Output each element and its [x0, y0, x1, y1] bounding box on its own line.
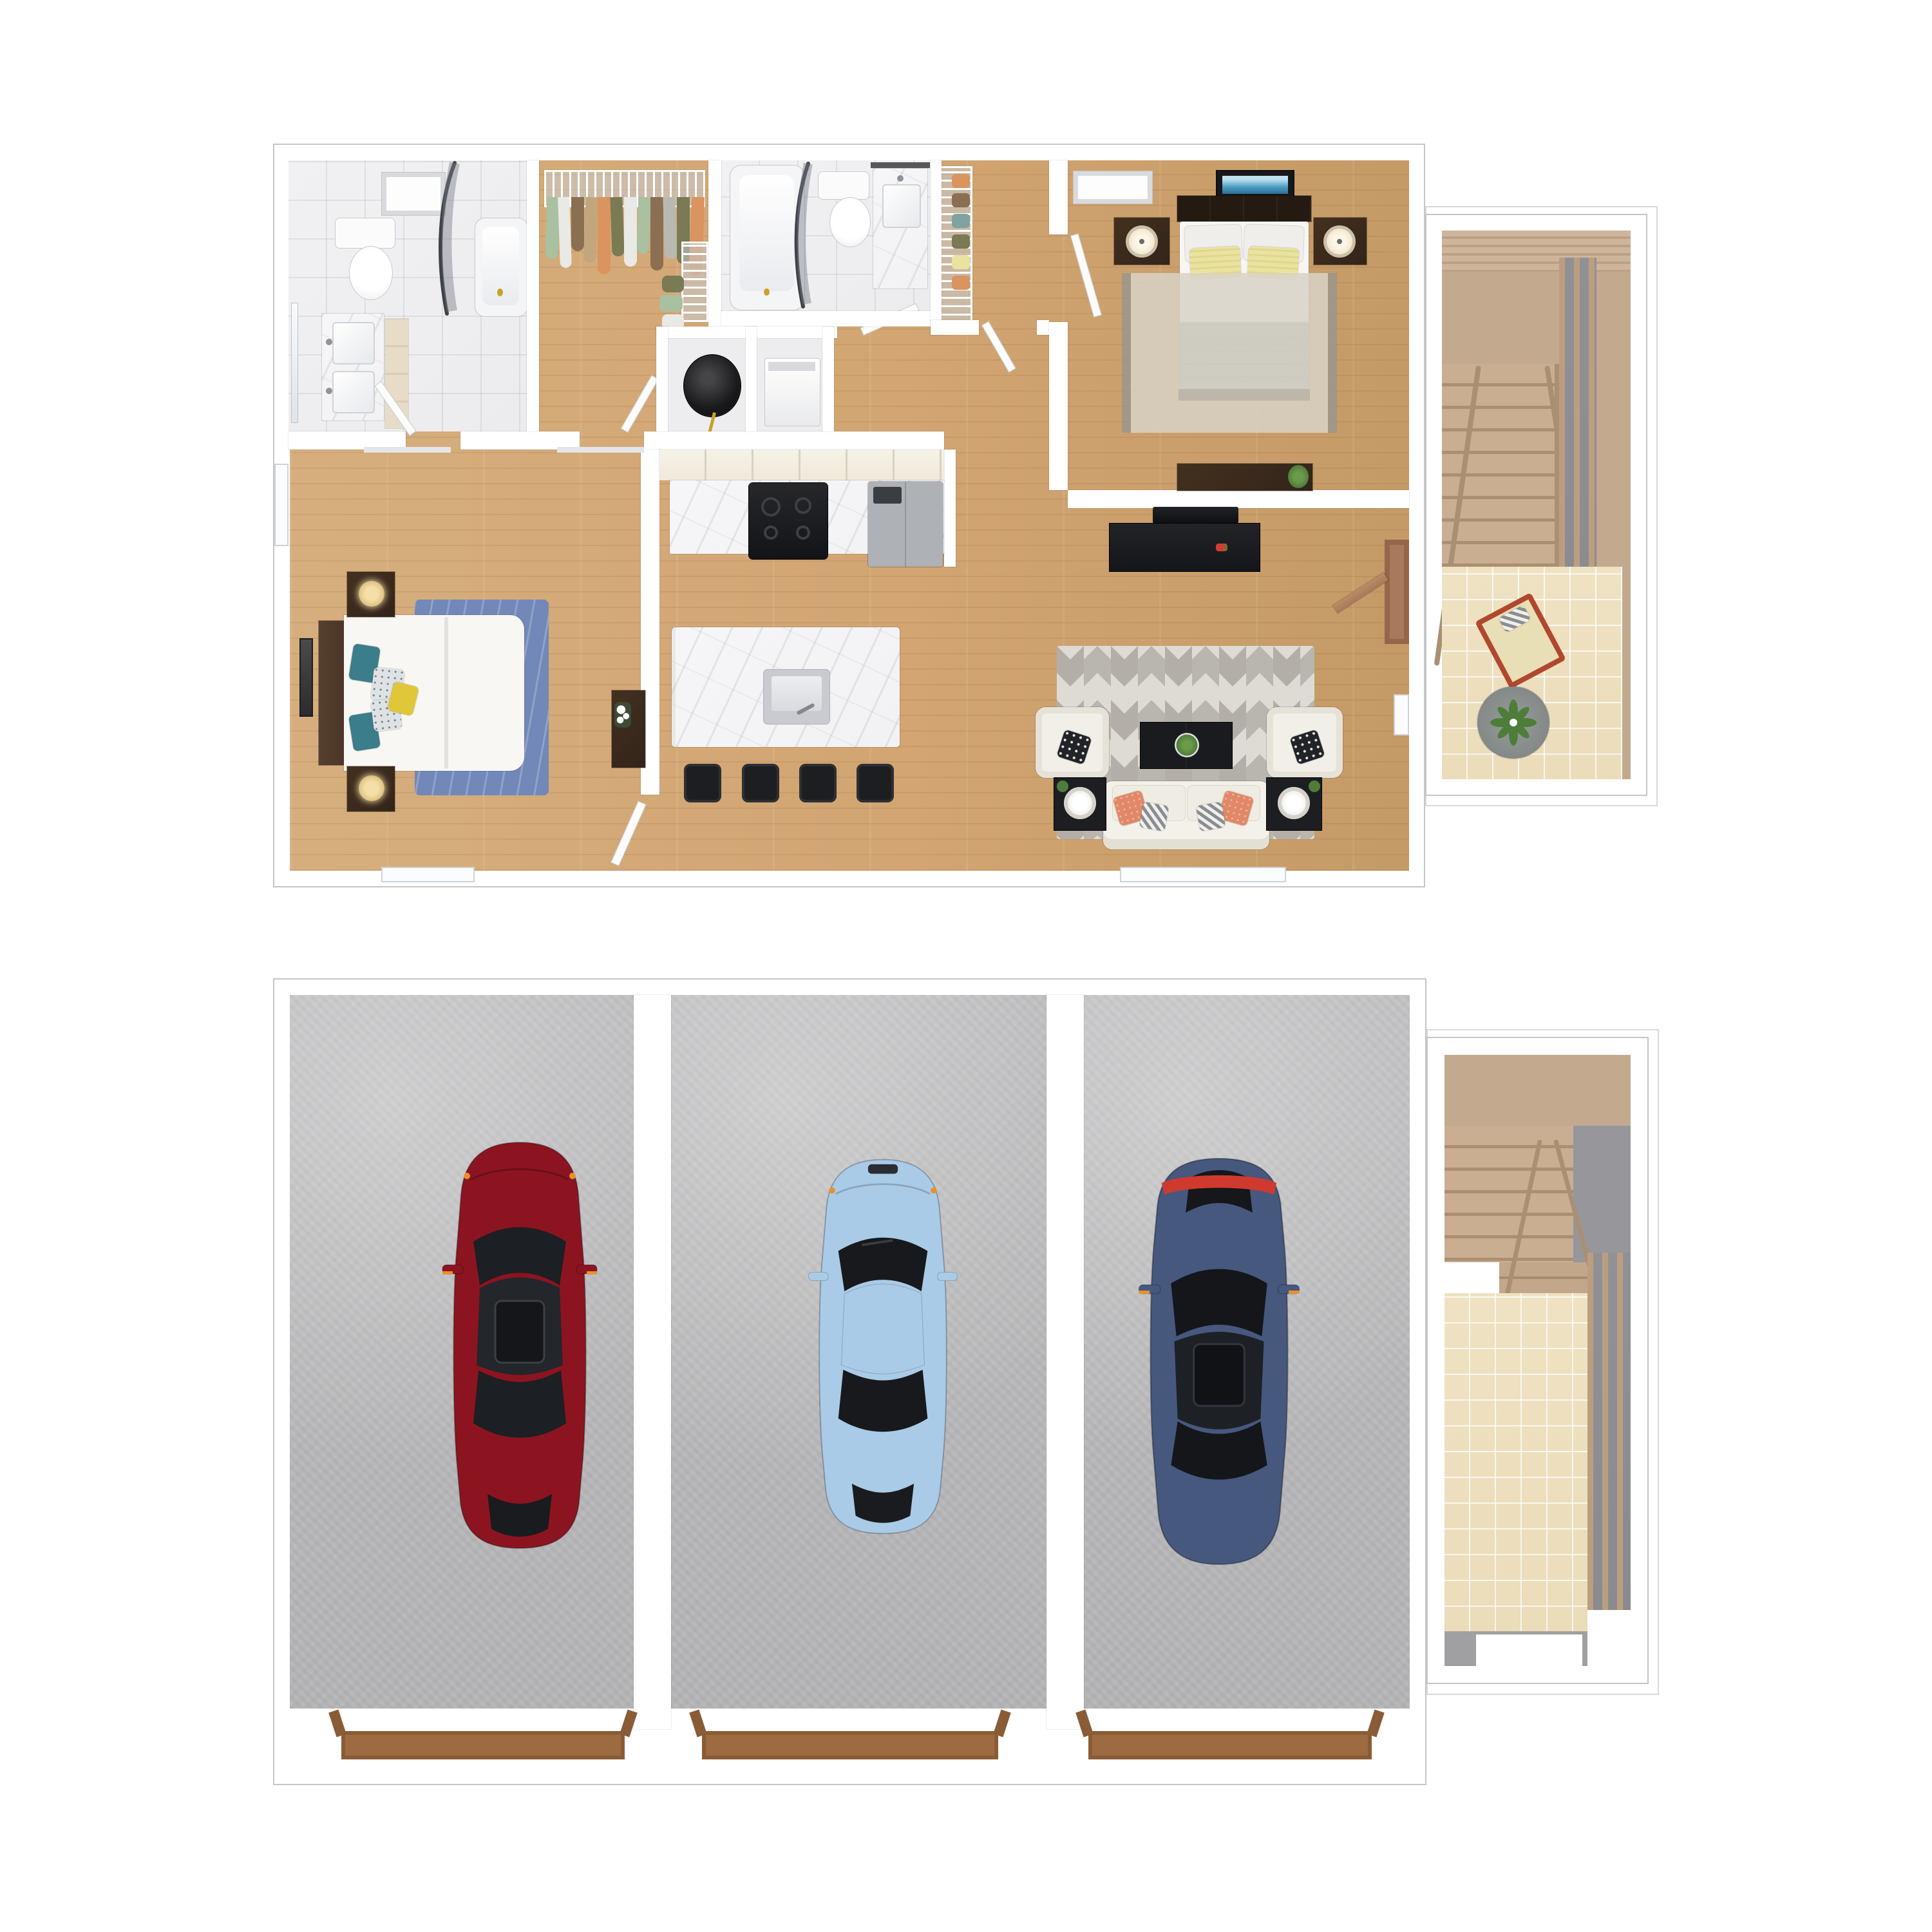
wall [721, 311, 931, 327]
wall [746, 327, 757, 431]
living-right-window [1394, 694, 1409, 735]
faucet-2 [326, 388, 332, 394]
vanity-sink-3 [882, 184, 921, 228]
garage-landing-doorway [1476, 1634, 1582, 1666]
coffee-table-plant [1175, 733, 1199, 757]
faucet-1 [326, 339, 332, 345]
shower-curtain-bath2 [782, 160, 834, 311]
sofa-pillow-striped-right [1196, 802, 1226, 831]
shoe-item [952, 255, 970, 269]
wall [944, 450, 956, 567]
bathtub-2-drain [764, 289, 770, 296]
floor-plan-canvas [0, 0, 1932, 1932]
bedroom2-lamp-right [1323, 225, 1356, 258]
toilet-bowl-master [349, 246, 393, 300]
master-bedroom-window [274, 464, 289, 546]
landing-plant [1489, 698, 1538, 747]
garage-stairwell-top [1444, 1055, 1631, 1126]
main-floor-plan [0, 0, 1932, 966]
clothing-item [558, 197, 572, 269]
tv-console [1110, 524, 1260, 571]
garage-staircase-upper [1444, 1126, 1573, 1262]
entry-door-frame [1385, 540, 1409, 644]
wall [1049, 160, 1068, 234]
master-lamp-bottom [359, 775, 384, 801]
clothing-item [598, 197, 611, 274]
bedroom2-skylight [1074, 171, 1152, 204]
toilet-bowl-2 [829, 197, 871, 247]
range-burner [764, 526, 778, 540]
faucet-3 [897, 175, 904, 182]
wall [931, 160, 942, 335]
wall [1049, 322, 1068, 490]
garage-door-threshold-1 [341, 1731, 625, 1759]
shoe-item [952, 234, 970, 249]
washer-panel [768, 362, 815, 371]
shoe-item [952, 276, 970, 290]
range-burner [761, 497, 781, 516]
bar-stool [684, 764, 721, 802]
garage-bay-wall-1 [634, 995, 671, 1729]
shower-curtain-master [425, 158, 483, 319]
master-lamp-top [359, 581, 384, 607]
garage-landing-tile [1444, 1293, 1587, 1631]
clothing-item [650, 197, 663, 270]
wall [1037, 320, 1049, 335]
vanity-sink-1 [332, 322, 375, 365]
sofa-pillow-striped-left [1139, 802, 1169, 831]
end-table-lamp-left [1064, 787, 1096, 819]
car-light-blue [800, 1156, 966, 1536]
toilet-tank-master [335, 218, 395, 249]
range-burner [796, 526, 810, 540]
range-burner [795, 497, 811, 514]
clothing-item [571, 197, 584, 251]
garage-floor-plan [0, 966, 1932, 1932]
master-door-lintel-2 [557, 447, 644, 453]
kitchen-upper-cabinets [659, 450, 944, 480]
car-red [433, 1139, 606, 1551]
wall [822, 327, 834, 431]
master-art-frame [301, 639, 312, 715]
car-navy [1130, 1156, 1309, 1568]
bedroom2-art-image [1222, 176, 1288, 194]
living-bottom-window [1120, 867, 1286, 882]
stairwell-joists [1442, 231, 1631, 272]
garage-door-threshold-2 [702, 1731, 998, 1759]
bedroom2-desk-plant [1288, 465, 1309, 488]
closet-drawer-tower [681, 241, 708, 322]
dresser-flowers [614, 702, 631, 728]
clothing-item [610, 197, 624, 257]
tv [1153, 507, 1238, 524]
clothing-item [636, 197, 650, 254]
bedroom2-headboard [1177, 196, 1311, 222]
garage-bay-wall-2 [1046, 995, 1084, 1729]
wall [931, 320, 979, 335]
wall [527, 160, 539, 431]
garage-door-threshold-3 [1088, 1731, 1372, 1759]
bedroom2-lamp-left [1126, 225, 1158, 258]
vanity-sink-2 [332, 371, 375, 413]
clothes-pile [662, 276, 684, 292]
garage-slat-wall [1587, 1253, 1631, 1610]
shoe-item [952, 214, 970, 228]
clothing-item [583, 197, 598, 263]
wall [1068, 490, 1409, 508]
shoe-item [952, 174, 970, 188]
master-bottom-window [381, 867, 475, 882]
end-table-plant-right [1309, 781, 1320, 792]
wall [656, 327, 668, 431]
bar-stool [857, 764, 894, 802]
shoe-item [952, 193, 970, 207]
game-controller [1216, 544, 1227, 551]
bar-stool [799, 764, 837, 802]
master-duvet-fold [444, 617, 448, 769]
vanity-mirror-2 [871, 162, 930, 168]
master-door-lintel-1 [364, 447, 451, 453]
kitchen-range [749, 483, 828, 559]
bar-stool [742, 764, 779, 802]
clothing-item [624, 197, 637, 267]
clothing-item [663, 197, 677, 260]
bedroom2-rug [1122, 273, 1337, 433]
water-heater [685, 355, 740, 416]
bathtub-master-drain [497, 289, 503, 296]
end-table-lamp-right [1278, 787, 1310, 819]
upper-staircase [1442, 364, 1558, 569]
end-table-plant-left [1057, 781, 1068, 792]
clothes-pile [659, 295, 683, 312]
vanity-mirror-master [291, 303, 298, 423]
wall [644, 431, 944, 450]
master-headboard [319, 621, 346, 765]
refrigerator-icemaker [873, 487, 902, 504]
wall [708, 160, 721, 327]
